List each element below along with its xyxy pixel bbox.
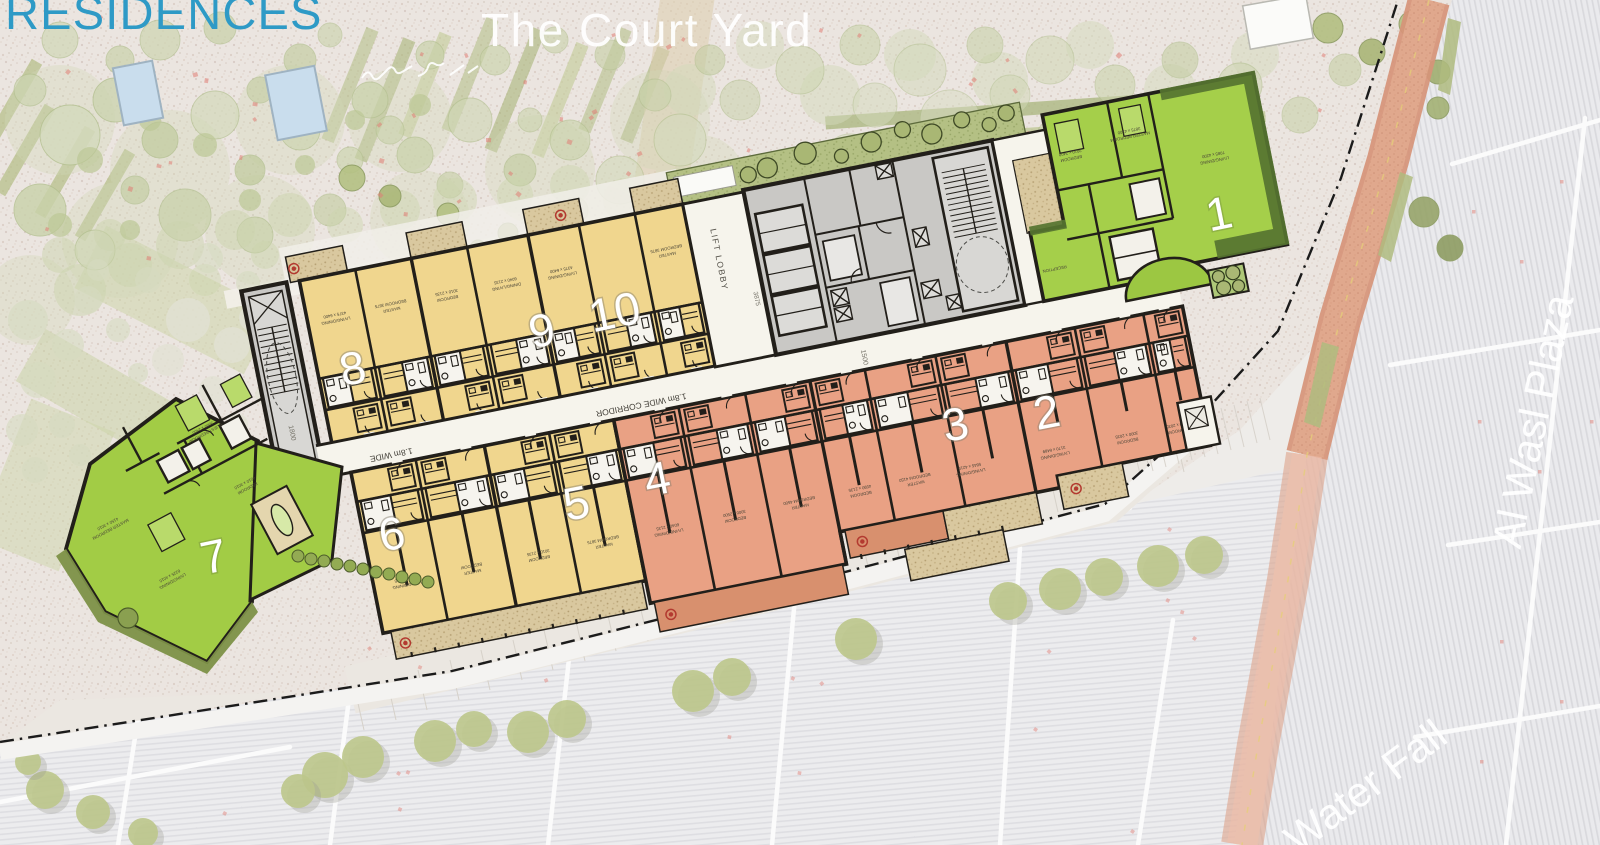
svg-text:The Court Yard: The Court Yard — [481, 4, 812, 56]
svg-text:RESIDENCES: RESIDENCES — [5, 0, 323, 39]
svg-text:10: 10 — [584, 281, 644, 342]
